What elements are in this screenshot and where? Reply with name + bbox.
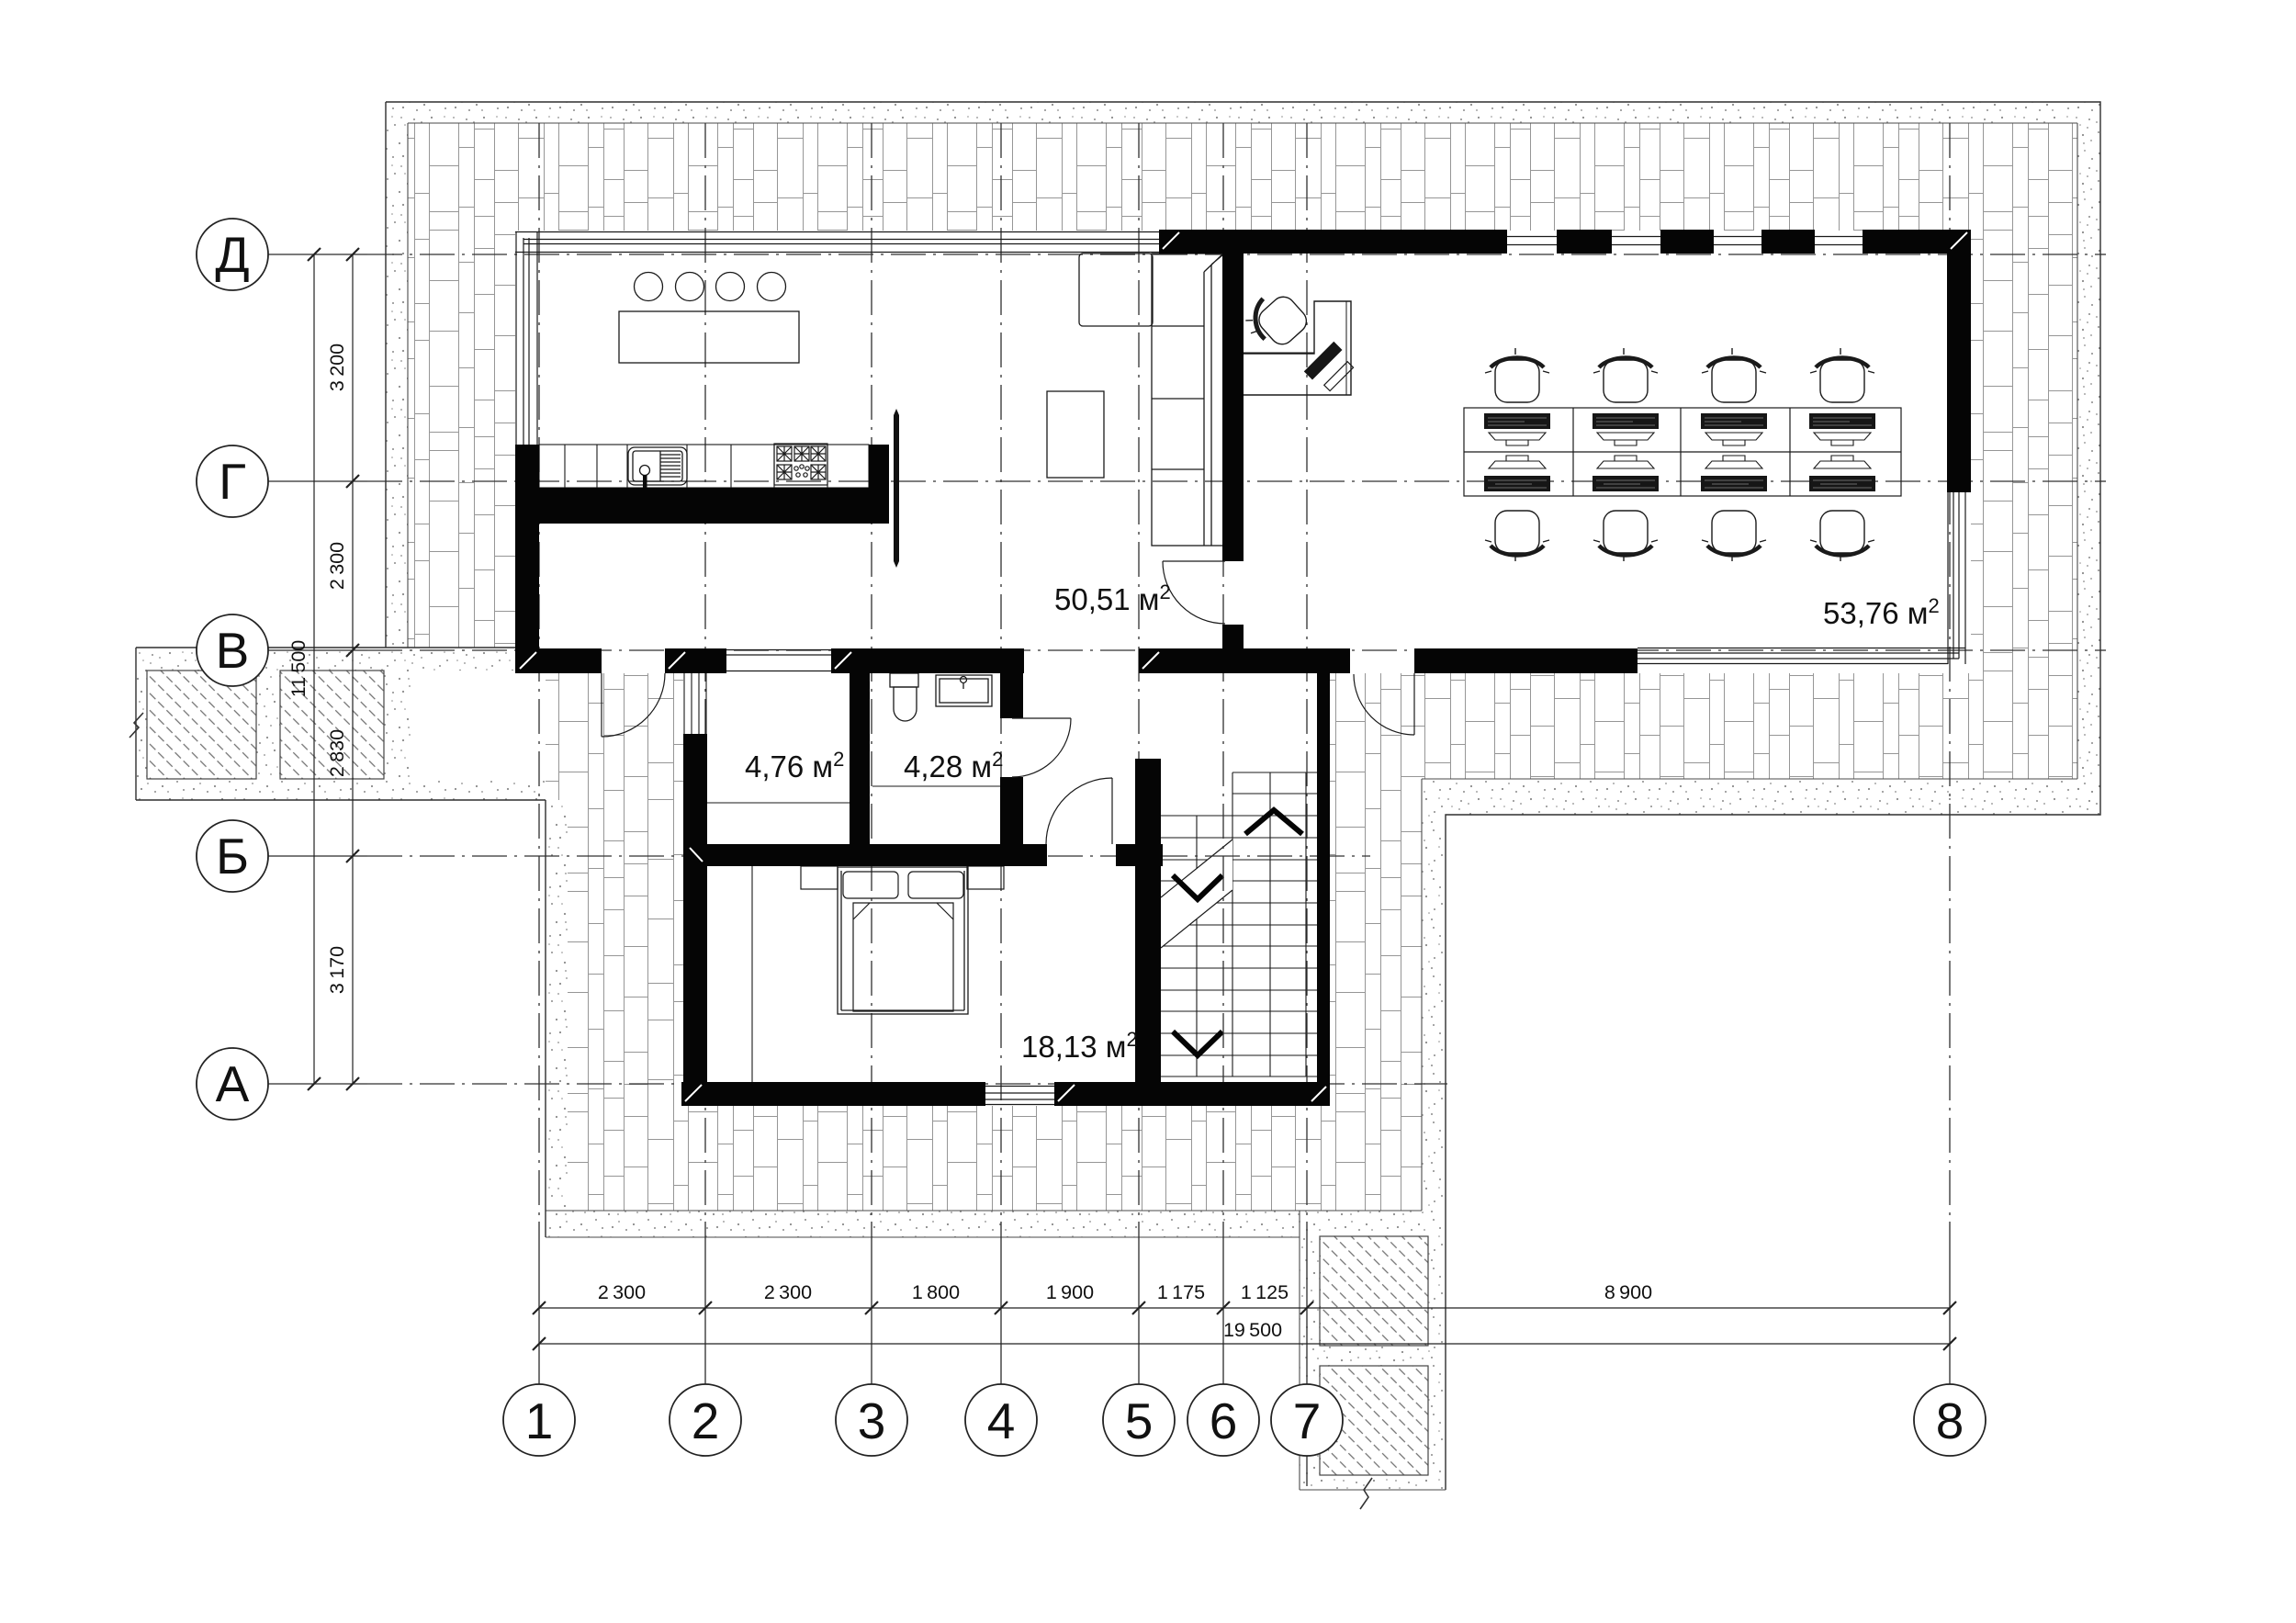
svg-text:3: 3 (858, 1392, 886, 1449)
svg-text:Д: Д (215, 226, 249, 283)
svg-text:4,28 м2: 4,28 м2 (904, 748, 1003, 783)
svg-text:Г: Г (219, 453, 246, 510)
svg-text:А: А (216, 1055, 250, 1112)
svg-text:4,76 м2: 4,76 м2 (745, 748, 844, 783)
svg-text:1 125: 1 125 (1241, 1281, 1289, 1303)
svg-text:2: 2 (692, 1392, 720, 1449)
svg-text:1 175: 1 175 (1157, 1281, 1205, 1303)
svg-text:18,13 м2: 18,13 м2 (1021, 1028, 1138, 1064)
svg-text:Б: Б (216, 828, 249, 885)
svg-text:50,51 м2: 50,51 м2 (1054, 580, 1171, 616)
svg-text:1 900: 1 900 (1046, 1281, 1094, 1303)
svg-text:1 800: 1 800 (912, 1281, 960, 1303)
svg-text:53,76 м2: 53,76 м2 (1823, 594, 1940, 630)
svg-text:6: 6 (1210, 1392, 1238, 1449)
svg-text:2 830: 2 830 (326, 729, 348, 777)
svg-text:3 170: 3 170 (326, 946, 348, 994)
svg-text:1: 1 (525, 1392, 554, 1449)
svg-text:В: В (216, 622, 250, 679)
svg-text:4: 4 (987, 1392, 1016, 1449)
svg-text:8: 8 (1936, 1392, 1964, 1449)
svg-text:19 500: 19 500 (1223, 1319, 1282, 1341)
svg-text:3 200: 3 200 (326, 344, 348, 391)
svg-text:11 500: 11 500 (287, 640, 310, 698)
svg-text:5: 5 (1125, 1392, 1154, 1449)
svg-text:2 300: 2 300 (764, 1281, 812, 1303)
svg-text:8 900: 8 900 (1604, 1281, 1652, 1303)
svg-text:2 300: 2 300 (326, 542, 348, 590)
svg-text:2 300: 2 300 (598, 1281, 646, 1303)
svg-text:7: 7 (1293, 1392, 1322, 1449)
